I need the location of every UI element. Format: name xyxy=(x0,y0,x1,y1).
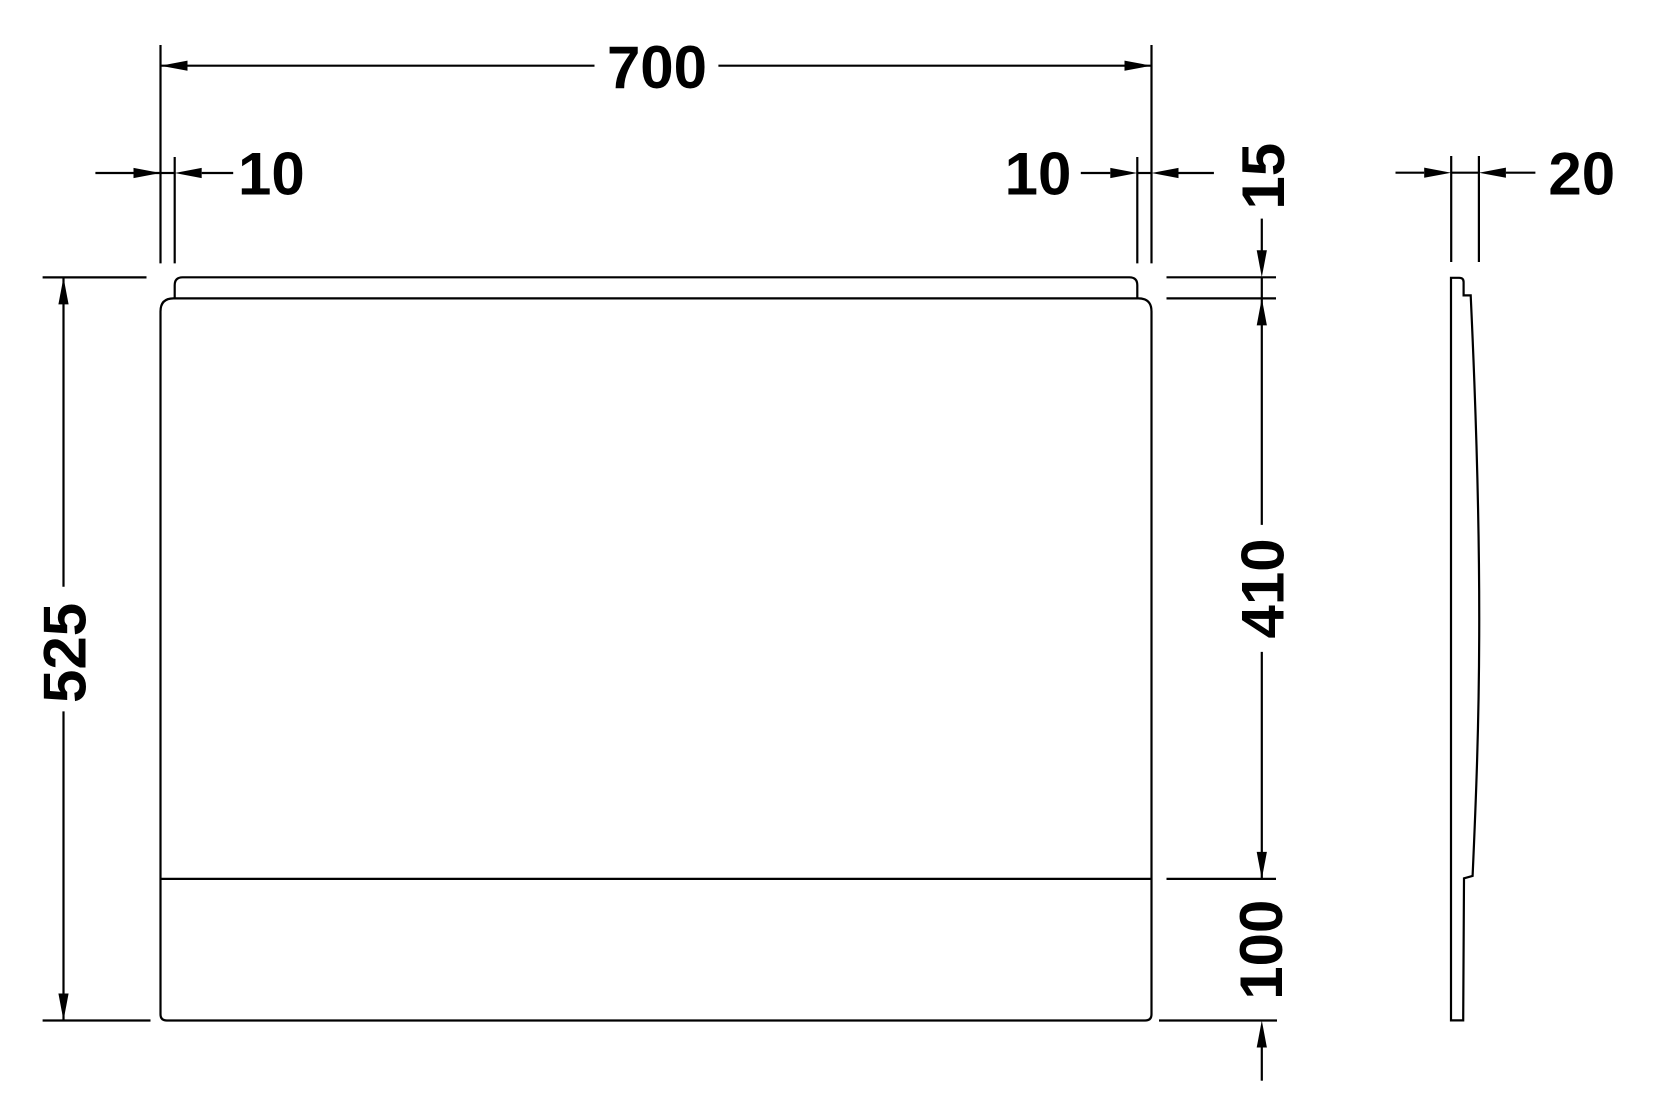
svg-text:15: 15 xyxy=(1230,143,1297,210)
svg-text:100: 100 xyxy=(1228,900,1295,1000)
svg-text:700: 700 xyxy=(607,34,707,101)
svg-text:10: 10 xyxy=(1005,141,1072,208)
svg-text:410: 410 xyxy=(1230,538,1297,638)
svg-text:525: 525 xyxy=(32,603,99,703)
svg-text:10: 10 xyxy=(238,141,305,208)
svg-text:20: 20 xyxy=(1548,141,1615,208)
